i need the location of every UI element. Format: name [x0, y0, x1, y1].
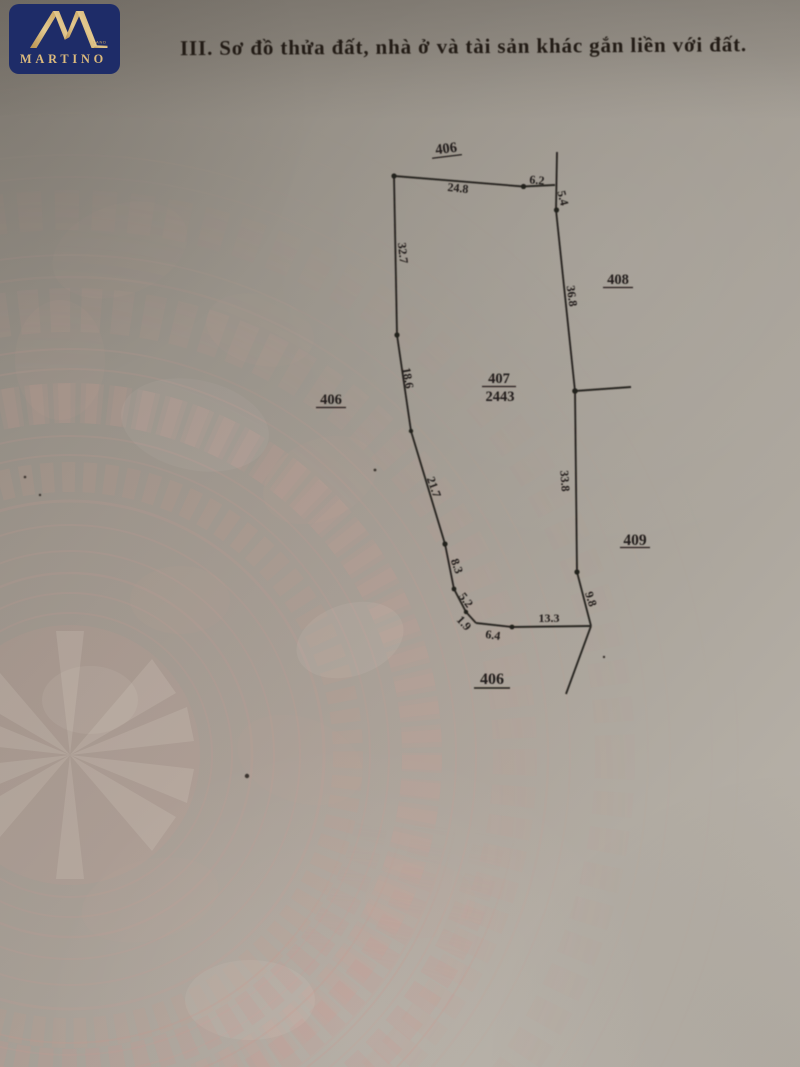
svg-text:13.3: 13.3	[539, 611, 560, 625]
svg-text:6.2: 6.2	[529, 172, 545, 187]
svg-text:5.2: 5.2	[456, 590, 476, 610]
svg-text:408: 408	[607, 272, 629, 288]
svg-text:407: 407	[488, 371, 510, 387]
svg-text:24.8: 24.8	[447, 180, 469, 196]
svg-text:2443: 2443	[486, 389, 515, 405]
svg-text:1.9: 1.9	[454, 613, 474, 634]
svg-text:406: 406	[480, 671, 504, 688]
svg-text:409: 409	[623, 532, 647, 549]
svg-text:406: 406	[320, 392, 342, 408]
svg-text:33.8: 33.8	[557, 470, 572, 492]
svg-text:36.8: 36.8	[564, 285, 581, 308]
svg-text:32.7: 32.7	[395, 242, 411, 264]
svg-text:21.7: 21.7	[424, 475, 444, 500]
svg-text:18.6: 18.6	[399, 366, 416, 389]
svg-text:6.4: 6.4	[485, 627, 502, 643]
